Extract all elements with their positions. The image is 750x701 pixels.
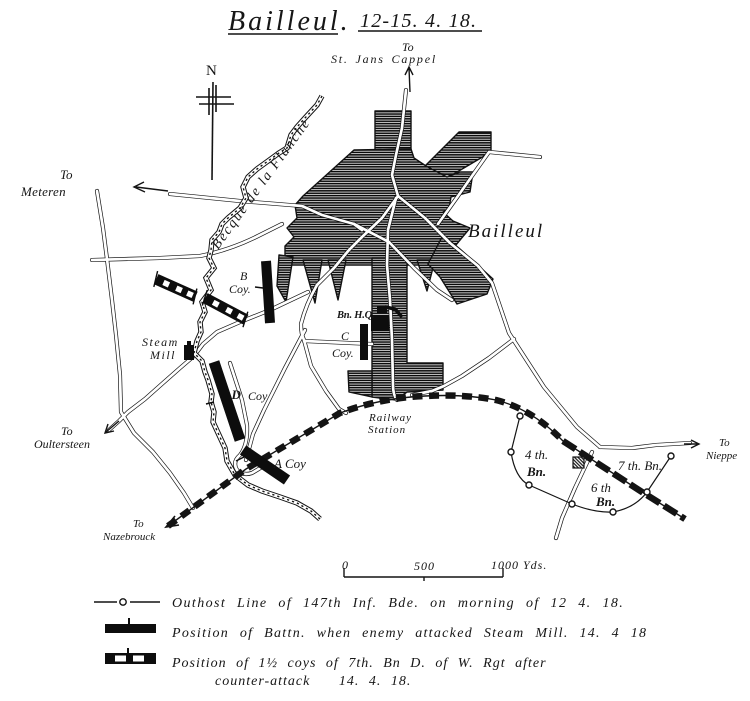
svg-text:Nieppe: Nieppe bbox=[705, 450, 737, 462]
svg-text:Meteren: Meteren bbox=[20, 184, 66, 199]
svg-text:6 th: 6 th bbox=[591, 480, 611, 495]
svg-text:0: 0 bbox=[342, 558, 348, 572]
svg-text:Position of 1½ coys of 7th. Bn: Position of 1½ coys of 7th. Bn D. of W. … bbox=[171, 656, 547, 671]
svg-text:St. Jans Cappel: St. Jans Cappel bbox=[331, 52, 437, 66]
svg-text:B: B bbox=[240, 269, 248, 283]
svg-text:Oultersteen: Oultersteen bbox=[34, 437, 90, 451]
svg-text:Coy.: Coy. bbox=[332, 346, 354, 360]
svg-text:To: To bbox=[133, 518, 144, 530]
svg-text:C: C bbox=[341, 329, 350, 343]
svg-text:Nazebrouck: Nazebrouck bbox=[102, 531, 156, 543]
svg-text:A Coy: A Coy bbox=[273, 456, 306, 471]
svg-text:7 th. Bn.: 7 th. Bn. bbox=[618, 458, 662, 473]
svg-text:To: To bbox=[719, 437, 730, 449]
svg-text:Bn. H.Q.: Bn. H.Q. bbox=[336, 310, 375, 321]
svg-text:Outhost Line of 147th Inf. Bde: Outhost Line of 147th Inf. Bde. on morni… bbox=[172, 596, 624, 611]
svg-text:Bn.: Bn. bbox=[595, 494, 615, 509]
svg-text:Bailleul.: Bailleul. bbox=[228, 6, 351, 37]
svg-text:Steam: Steam bbox=[142, 335, 179, 349]
svg-text:Railway: Railway bbox=[368, 412, 412, 424]
svg-text:Bn.: Bn. bbox=[526, 464, 546, 479]
svg-text:N: N bbox=[206, 63, 217, 79]
svg-text:Bailleul: Bailleul bbox=[468, 221, 544, 242]
svg-text:1000 Yds.: 1000 Yds. bbox=[491, 558, 547, 572]
svg-text:To: To bbox=[61, 424, 73, 438]
svg-text:Coy: Coy bbox=[248, 389, 268, 403]
svg-text:To: To bbox=[60, 167, 73, 182]
svg-text:Station: Station bbox=[368, 424, 406, 436]
svg-text:D: D bbox=[231, 387, 242, 402]
svg-text:Mill: Mill bbox=[149, 348, 176, 362]
svg-text:4 th.: 4 th. bbox=[525, 447, 548, 462]
svg-text:Coy.: Coy. bbox=[229, 282, 251, 296]
svg-text:counter-attack 14. 4. 18.: counter-attack 14. 4. 18. bbox=[215, 674, 411, 689]
svg-text:12-15. 4. 18.: 12-15. 4. 18. bbox=[360, 10, 477, 32]
svg-text:Position of Battn. when enemy: Position of Battn. when enemy attacked S… bbox=[171, 626, 647, 641]
svg-text:500: 500 bbox=[414, 559, 435, 573]
